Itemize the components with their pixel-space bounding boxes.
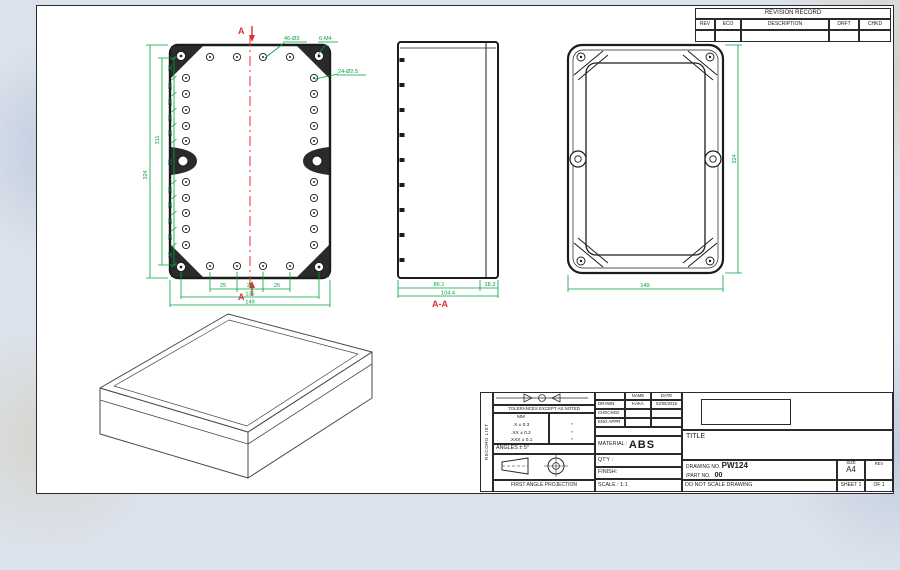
logo-area [682, 392, 893, 430]
svg-text:135: 135 [245, 292, 254, 298]
svg-text:36: 36 [168, 65, 174, 71]
sheet-of: OF 1 [865, 480, 893, 492]
svg-text:28: 28 [168, 130, 174, 136]
description-col-header: DESCRIPTION [741, 19, 829, 30]
eco-cell-empty [715, 30, 741, 42]
section-view-labels: 86.1 18.3 104.4 A-A [432, 282, 495, 309]
projection-symbols [493, 454, 595, 480]
drawing-no-label: DRAWING NO. [686, 464, 720, 470]
projection-caption: FIRST ANGLE PROJECTION [493, 480, 595, 492]
svg-text:149: 149 [640, 283, 649, 289]
first-angle-projection-icon [494, 455, 590, 477]
rev-col-header: REV [695, 19, 715, 30]
title-block: RECORD LIST TOLERANCES EXCEPT AS NOTED M… [480, 392, 893, 492]
svg-text:149: 149 [245, 300, 254, 306]
size-value: A4 [838, 466, 864, 475]
tolerance-row: .XX ± 0.2 [494, 429, 548, 437]
tolerance-unit: MM [494, 414, 548, 422]
tolerance-row: .X ± 0.3 [494, 422, 548, 430]
section-view-title: A-A [432, 299, 448, 309]
name-header: NAME [625, 392, 651, 400]
scale-row: SCALE : 1:1 [595, 479, 682, 492]
do-not-scale-note: DO NOT SCALE DRAWING [682, 480, 837, 492]
sheet-number: SHEET 1 [837, 480, 865, 492]
section-view [398, 42, 498, 278]
tolerance-row: .XXX ± 0.1 [494, 437, 548, 444]
drawn-name: KAKA [625, 400, 651, 409]
checked-label: CHECKED [595, 409, 625, 418]
material-label: MATERIAL : [598, 442, 627, 448]
logo-box [701, 399, 791, 425]
qty-row: QT'Y : [595, 454, 682, 467]
svg-text:28: 28 [168, 187, 174, 193]
date-header: DATE [651, 392, 682, 400]
svg-text:28: 28 [168, 83, 174, 89]
tolerance-star: * [550, 437, 594, 444]
svg-text:25: 25 [247, 283, 253, 289]
finish-symbol-row [493, 392, 595, 405]
isometric-view [100, 314, 372, 478]
svg-text:25: 25 [274, 283, 280, 289]
svg-text:18.3: 18.3 [485, 282, 496, 288]
drawing-page: { "colors": { "dimension_green": "#00a33… [0, 0, 900, 500]
finish-row: FINISH: [595, 467, 682, 479]
svg-text:28: 28 [168, 234, 174, 240]
svg-text:28: 28 [168, 99, 174, 105]
description-cell-empty [741, 30, 829, 42]
svg-text:28: 28 [168, 115, 174, 121]
part-no-value: 00 [715, 472, 723, 479]
tolerance-values: MM .X ± 0.3 .XX ± 0.2 .XXX ± 0.1 [493, 413, 549, 444]
svg-text:25: 25 [220, 283, 226, 289]
tolerance-star: * [550, 429, 594, 437]
svg-text:311: 311 [155, 136, 161, 145]
tolerance-stars: * * * [549, 413, 595, 444]
section-marker-top: A [238, 26, 245, 36]
annotation-side-holes: 24-Ø2.5 [338, 69, 358, 75]
svg-text:36: 36 [168, 252, 174, 258]
angles-tolerance: ANGLES ± 5° [493, 444, 595, 454]
chkd-cell-empty [859, 30, 891, 42]
annotation-corner-holes: 6-M4 [319, 36, 332, 42]
rev-cell: REV [865, 460, 893, 480]
size-cell: SIZE A4 [837, 460, 865, 480]
svg-text:324: 324 [732, 154, 738, 163]
drft-col-header: DRFT [829, 19, 859, 30]
drawn-label: DRAWN [595, 400, 625, 409]
record-list-strip: RECORD LIST [480, 392, 493, 492]
drft-cell-empty [829, 30, 859, 42]
chkd-col-header: CHKD [859, 19, 891, 30]
svg-text:324: 324 [143, 170, 149, 179]
revision-record-table: REVISION RECORD REV ECO DESCRIPTION DRFT… [695, 8, 891, 42]
part-no-label: /PART NO. [686, 473, 710, 479]
tolerance-heading: TOLERANCES EXCEPT AS NOTED [493, 405, 595, 413]
svg-text:104.4: 104.4 [441, 291, 455, 297]
svg-text:86.1: 86.1 [434, 282, 445, 288]
drawing-number-cell: DRAWING NO. PW124 /PART NO. 00 [682, 460, 837, 480]
title-field: TITLE [682, 430, 893, 460]
svg-text:28: 28 [168, 218, 174, 224]
svg-text:28: 28 [168, 202, 174, 208]
rev-cell-empty [695, 30, 715, 42]
material-row: MATERIAL : ABS [595, 436, 682, 454]
svg-text:72: 72 [168, 159, 174, 165]
eng-appr-label: ENG APPR [595, 418, 625, 427]
tolerance-star: * [550, 422, 594, 430]
top-view [568, 45, 723, 273]
revision-record-title: REVISION RECORD [695, 8, 891, 19]
eco-col-header: ECO [715, 19, 741, 30]
drawing-no-value: PW124 [722, 461, 748, 470]
material-value: ABS [629, 439, 655, 451]
surface-symbols-icon [494, 393, 590, 403]
annotation-small-holes: 46-Ø3 [284, 36, 300, 42]
drawn-date: 02/05/2015 [651, 400, 682, 409]
